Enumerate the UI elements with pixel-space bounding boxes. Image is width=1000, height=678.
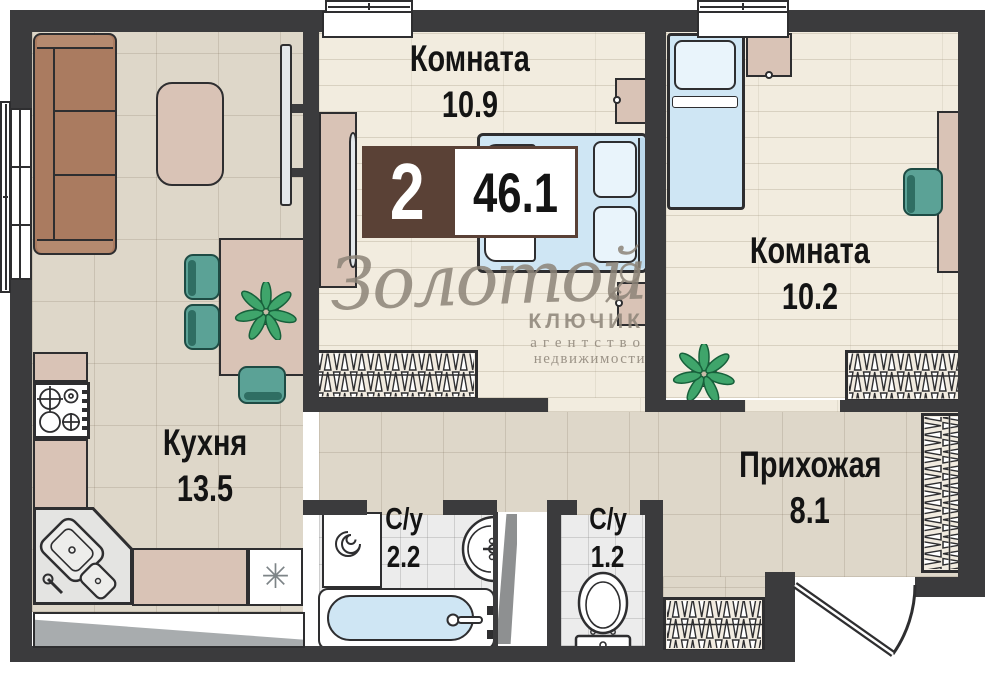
stove-icon (33, 382, 90, 439)
badge-total-area: 46.1 (452, 146, 578, 238)
chair (238, 366, 286, 404)
hallway-label: Прихожая 8.1 (710, 442, 910, 534)
nightstand (746, 33, 792, 77)
wall (10, 10, 985, 32)
room1-label: Комната 10.9 (370, 36, 570, 128)
fridge-icon: ✳ (248, 548, 303, 606)
room1-door-opening (548, 398, 645, 412)
plant-icon (230, 282, 302, 340)
single-bed (667, 33, 745, 210)
wall (645, 500, 663, 662)
bathroom-door-leaf (517, 514, 543, 644)
bathtub (318, 588, 495, 650)
wardrobe-hallway-nook (663, 597, 765, 652)
kitchen-label: Кухня 13.5 (105, 420, 305, 512)
window-room1 (322, 11, 413, 38)
room2-door-opening (745, 400, 840, 412)
wall (443, 500, 497, 515)
window-room2 (697, 11, 789, 38)
wall (10, 278, 32, 662)
wall (303, 398, 548, 412)
room2-label: Комната 10.2 (710, 228, 910, 320)
wall (547, 500, 561, 655)
coffee-table (156, 82, 224, 186)
watermark-line2: недвижимости (534, 351, 646, 368)
kitchen-counter (33, 352, 88, 382)
wall (958, 10, 985, 597)
corner-sink (33, 507, 133, 605)
badge-rooms-count: 2 (362, 146, 452, 238)
plant-icon (668, 344, 740, 402)
wall (303, 500, 367, 515)
floor-plan: ✳ (0, 0, 1000, 678)
apartment-badge: 2 46.1 (362, 146, 578, 238)
bathtub-faucet (443, 604, 485, 636)
wall (666, 400, 745, 412)
chair (184, 304, 220, 350)
window-kitchen (33, 612, 305, 648)
chair (184, 254, 220, 300)
wall (10, 646, 660, 662)
toilet-label: С/у 1.2 (572, 500, 644, 576)
tv-kitchen (280, 44, 292, 206)
watermark-word: КЛЮЧИК (528, 310, 644, 334)
wall (10, 10, 32, 113)
window-living (10, 108, 32, 280)
wall (660, 650, 765, 662)
kitchen-counter (132, 548, 248, 606)
bathroom-label: С/у 2.2 (368, 500, 440, 576)
toilet (570, 570, 636, 658)
wall (840, 400, 958, 412)
key-icon (594, 258, 646, 308)
kitchen-counter (33, 439, 88, 509)
entrance-door (783, 572, 933, 672)
sofa (33, 33, 117, 255)
bathroom-sink (450, 512, 498, 586)
watermark-line1: агентство (530, 335, 646, 352)
wall (303, 10, 319, 412)
wall (493, 512, 498, 646)
desk-chair (903, 168, 943, 216)
